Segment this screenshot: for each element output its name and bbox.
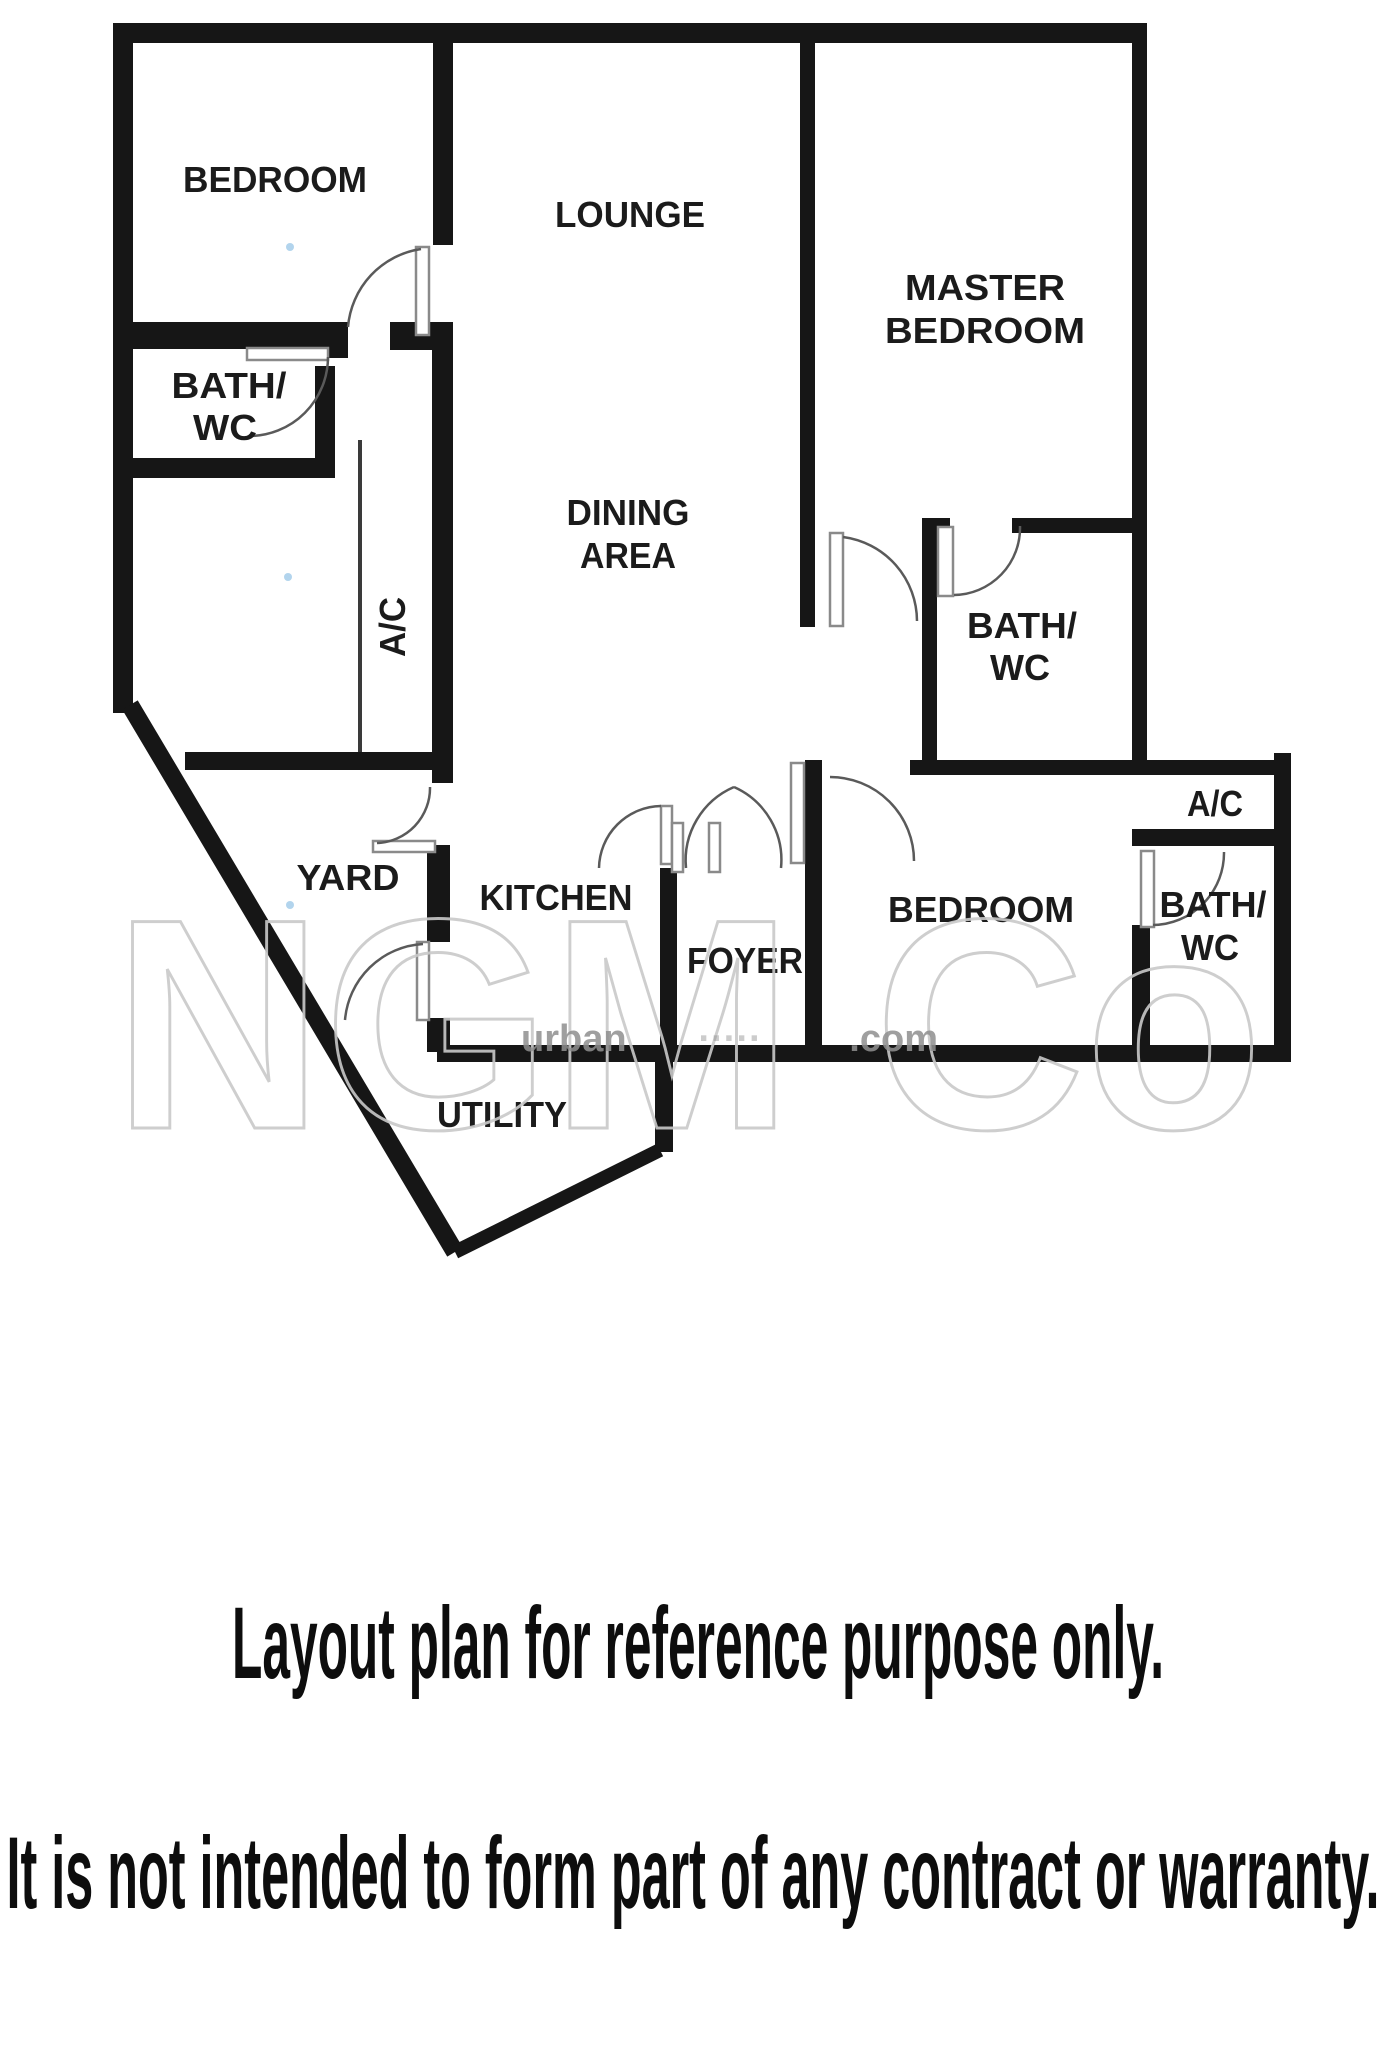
door-leaf — [830, 533, 843, 626]
room-label-dining-area-line1: DINING — [567, 492, 690, 533]
wall — [910, 760, 1147, 775]
door-leaf — [416, 247, 429, 335]
room-label-master-bedroom-line1: MASTER — [905, 267, 1065, 308]
watermark-url-middle: ····· — [698, 1018, 761, 1060]
door-swing-arc — [954, 526, 1020, 595]
door-swing-arc — [830, 777, 914, 861]
room-label-lounge: LOUNGE — [555, 194, 705, 235]
watermark-logo-text: NGM Co — [113, 856, 1263, 1192]
room-label-bedroom-topleft: BEDROOM — [183, 159, 367, 200]
wall — [1012, 518, 1132, 533]
door-leaf — [938, 527, 953, 596]
wall — [185, 752, 437, 770]
wall — [1132, 23, 1147, 775]
watermark-url-start: urban — [521, 1018, 627, 1060]
scanned-floor-plan-page: BEDROOM LOUNGE MASTER BEDROOM BATH/ WC D… — [0, 0, 1382, 2048]
wall — [1274, 753, 1291, 1062]
scan-speck — [286, 243, 294, 251]
room-label-ac-left: A/C — [372, 597, 413, 657]
wall — [1132, 829, 1150, 846]
floor-plan-svg: BEDROOM LOUNGE MASTER BEDROOM BATH/ WC D… — [0, 0, 1382, 2048]
door-swing-arc — [348, 249, 421, 327]
wall — [113, 322, 348, 338]
wall — [800, 23, 815, 627]
door-swing-arc — [843, 537, 917, 621]
room-label-bath-wc-topleft-line1: BATH/ — [172, 365, 287, 406]
room-label-bath-wc-master-line1: BATH/ — [967, 605, 1077, 646]
wall — [113, 23, 1147, 43]
door-leaf — [791, 763, 804, 863]
wall — [1147, 760, 1291, 775]
room-label-ac-right: A/C — [1187, 783, 1243, 824]
wall — [113, 23, 133, 713]
room-label-bath-wc-master-line2: WC — [990, 647, 1050, 688]
door-leaf — [247, 348, 328, 360]
wall — [113, 458, 335, 478]
room-label-master-bedroom-line2: BEDROOM — [885, 310, 1085, 351]
captions: Layout plan for reference purpose only. … — [7, 1586, 1380, 1930]
wall — [315, 366, 335, 478]
wall — [1150, 829, 1291, 846]
room-label-dining-area-line2: AREA — [580, 535, 676, 576]
caption-no-contract: It is not intended to form part of any c… — [7, 1816, 1380, 1930]
wall — [922, 518, 937, 767]
caption-reference-only: Layout plan for reference purpose only. — [232, 1586, 1164, 1700]
scan-speck — [284, 573, 292, 581]
door-swing-arc — [377, 787, 430, 843]
watermark-url-end: .com — [849, 1018, 938, 1060]
watermarks: NGM Co urban ····· .com — [113, 856, 1263, 1192]
room-label-bath-wc-topleft-line2: WC — [193, 407, 257, 448]
wall — [433, 23, 453, 245]
wall — [432, 322, 453, 783]
